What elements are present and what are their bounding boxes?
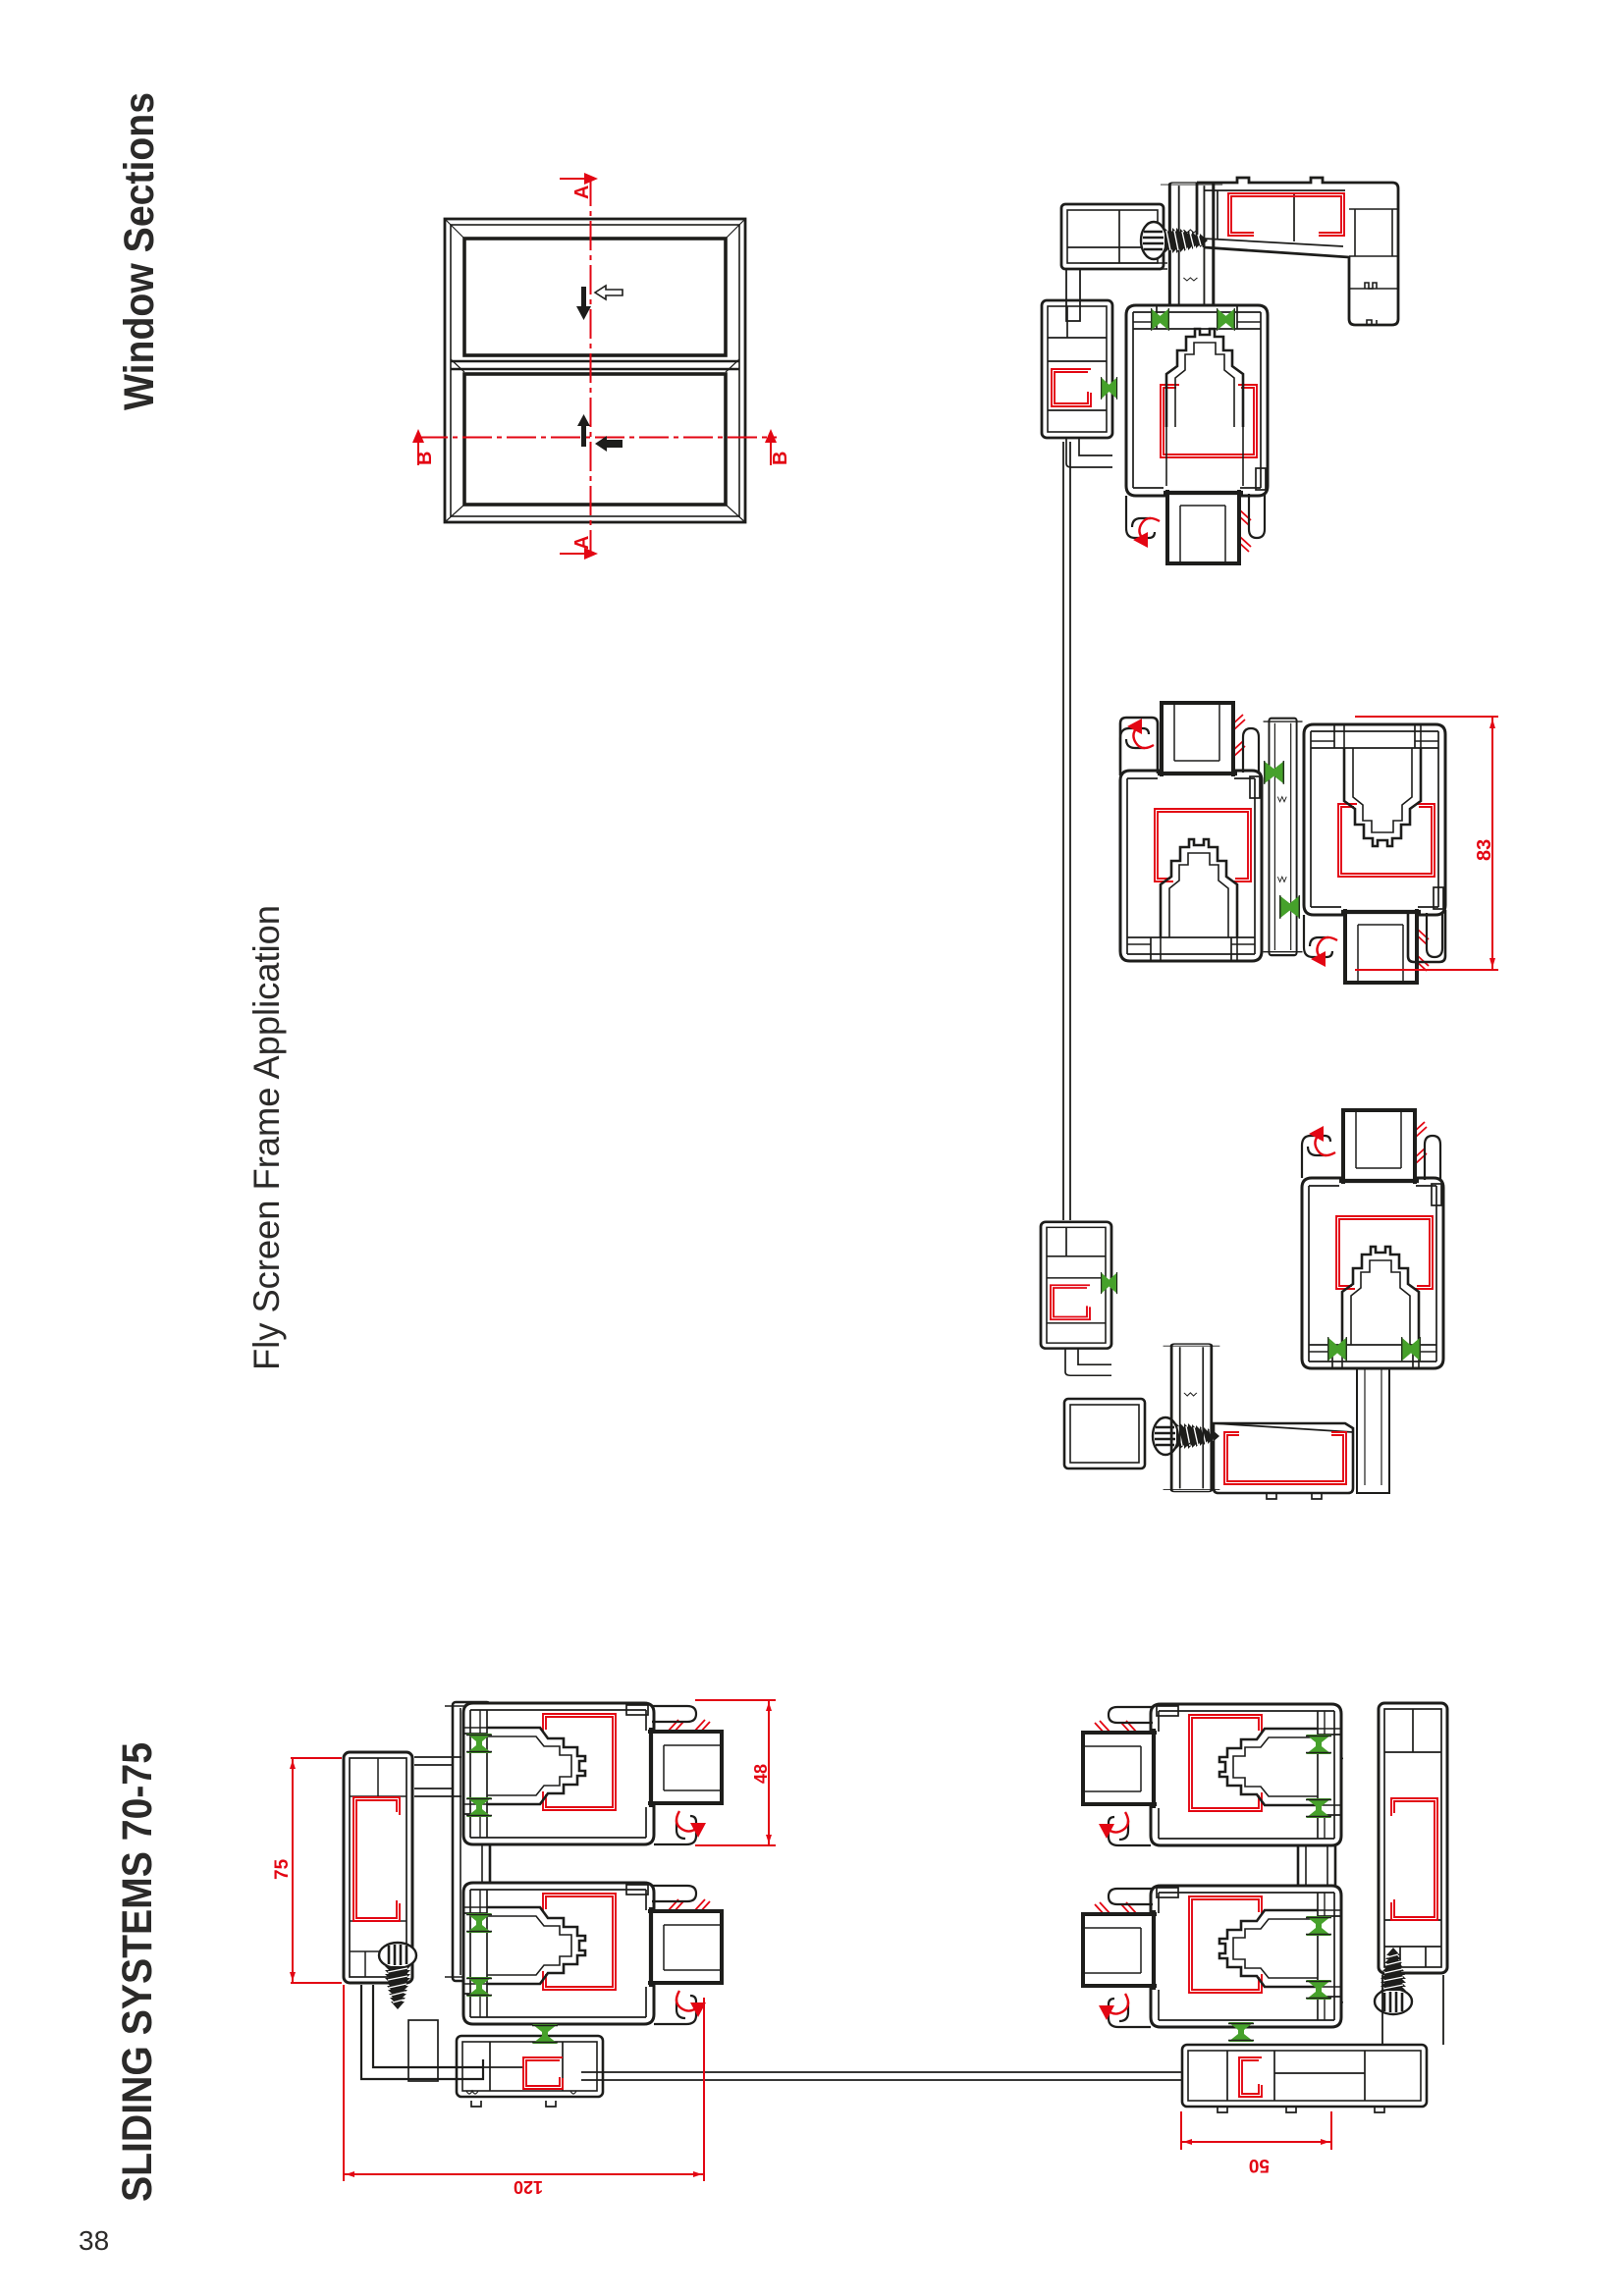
svg-text:B: B [414, 452, 436, 465]
svg-text:B: B [770, 452, 791, 465]
svg-text:A: A [571, 536, 593, 550]
svg-text:Fly Screen Frame Application: Fly Screen Frame Application [246, 905, 287, 1370]
svg-text:83: 83 [1474, 839, 1495, 861]
svg-text:48: 48 [751, 1764, 771, 1784]
svg-text:120: 120 [514, 2177, 543, 2197]
svg-text:75: 75 [272, 1858, 293, 1880]
svg-text:A: A [571, 186, 593, 199]
svg-text:38: 38 [79, 2225, 109, 2256]
svg-text:SLIDING SYSTEMS 70-75: SLIDING SYSTEMS 70-75 [114, 1742, 161, 2202]
svg-text:Window Sections: Window Sections [116, 92, 163, 410]
svg-text:50: 50 [1249, 2155, 1270, 2175]
